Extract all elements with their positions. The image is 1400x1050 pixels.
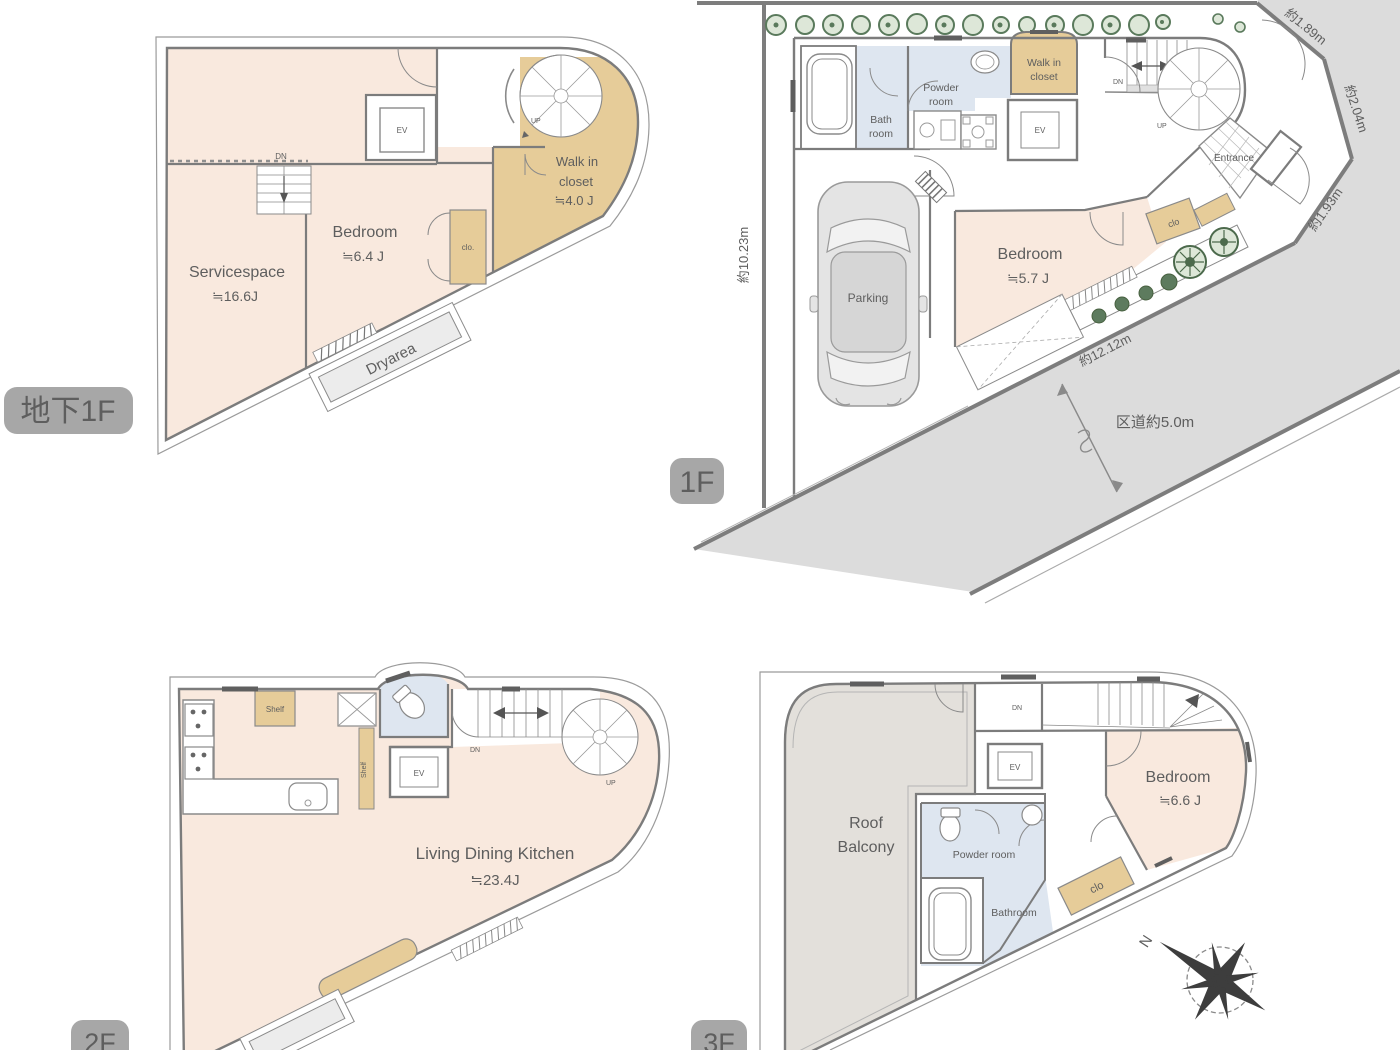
svg-text:Walk in: Walk in [1027, 57, 1061, 69]
svg-text:Walk in: Walk in [556, 154, 598, 169]
svg-text:Living Dining Kitchen: Living Dining Kitchen [416, 844, 575, 863]
svg-text:Bedroom: Bedroom [1146, 769, 1211, 786]
svg-text:約10.23m: 約10.23m [736, 227, 751, 283]
svg-text:Balcony: Balcony [838, 839, 895, 856]
svg-text:≒6.4 J: ≒6.4 J [342, 248, 384, 264]
svg-text:2F: 2F [84, 1028, 116, 1050]
svg-text:Roof: Roof [849, 815, 883, 832]
svg-text:Shelf: Shelf [361, 762, 368, 778]
svg-text:Bedroom: Bedroom [998, 246, 1063, 263]
svg-text:Powder: Powder [923, 82, 959, 94]
svg-text:≒16.6J: ≒16.6J [212, 288, 258, 304]
svg-text:Bedroom: Bedroom [333, 224, 398, 241]
svg-text:N: N [1136, 932, 1156, 950]
svg-text:DN: DN [470, 747, 480, 754]
svg-text:EV: EV [397, 126, 408, 135]
svg-text:Parking: Parking [848, 291, 889, 305]
svg-text:clo.: clo. [462, 243, 474, 252]
svg-text:room: room [869, 128, 893, 140]
svg-text:EV: EV [1035, 126, 1046, 135]
svg-text:UP: UP [1157, 123, 1167, 130]
svg-text:DN: DN [1012, 705, 1022, 712]
svg-text:DN: DN [275, 152, 287, 161]
svg-text:3F: 3F [703, 1028, 735, 1050]
svg-text:EV: EV [414, 769, 425, 778]
svg-text:closet: closet [1030, 71, 1058, 83]
svg-text:Powder room: Powder room [953, 849, 1016, 861]
svg-text:≒4.0 J: ≒4.0 J [554, 193, 593, 208]
svg-text:≒6.6 J: ≒6.6 J [1159, 792, 1201, 808]
svg-text:DN: DN [1113, 79, 1123, 86]
svg-text:UP: UP [606, 780, 616, 787]
svg-text:EV: EV [1010, 763, 1021, 772]
svg-text:Bath: Bath [870, 114, 892, 126]
svg-text:Bathroom: Bathroom [991, 907, 1037, 919]
svg-text:Shelf: Shelf [266, 705, 285, 714]
svg-text:Entrance: Entrance [1214, 153, 1254, 164]
svg-text:1F: 1F [679, 466, 714, 499]
svg-text:≒23.4J: ≒23.4J [470, 872, 519, 889]
svg-text:closet: closet [559, 174, 593, 189]
svg-text:≒5.7 J: ≒5.7 J [1007, 270, 1049, 286]
svg-text:区道約5.0m: 区道約5.0m [1116, 414, 1194, 431]
svg-text:room: room [929, 96, 953, 108]
svg-text:Servicespace: Servicespace [189, 264, 285, 281]
svg-text:UP: UP [531, 118, 541, 125]
svg-text:地下1F: 地下1F [20, 395, 115, 428]
